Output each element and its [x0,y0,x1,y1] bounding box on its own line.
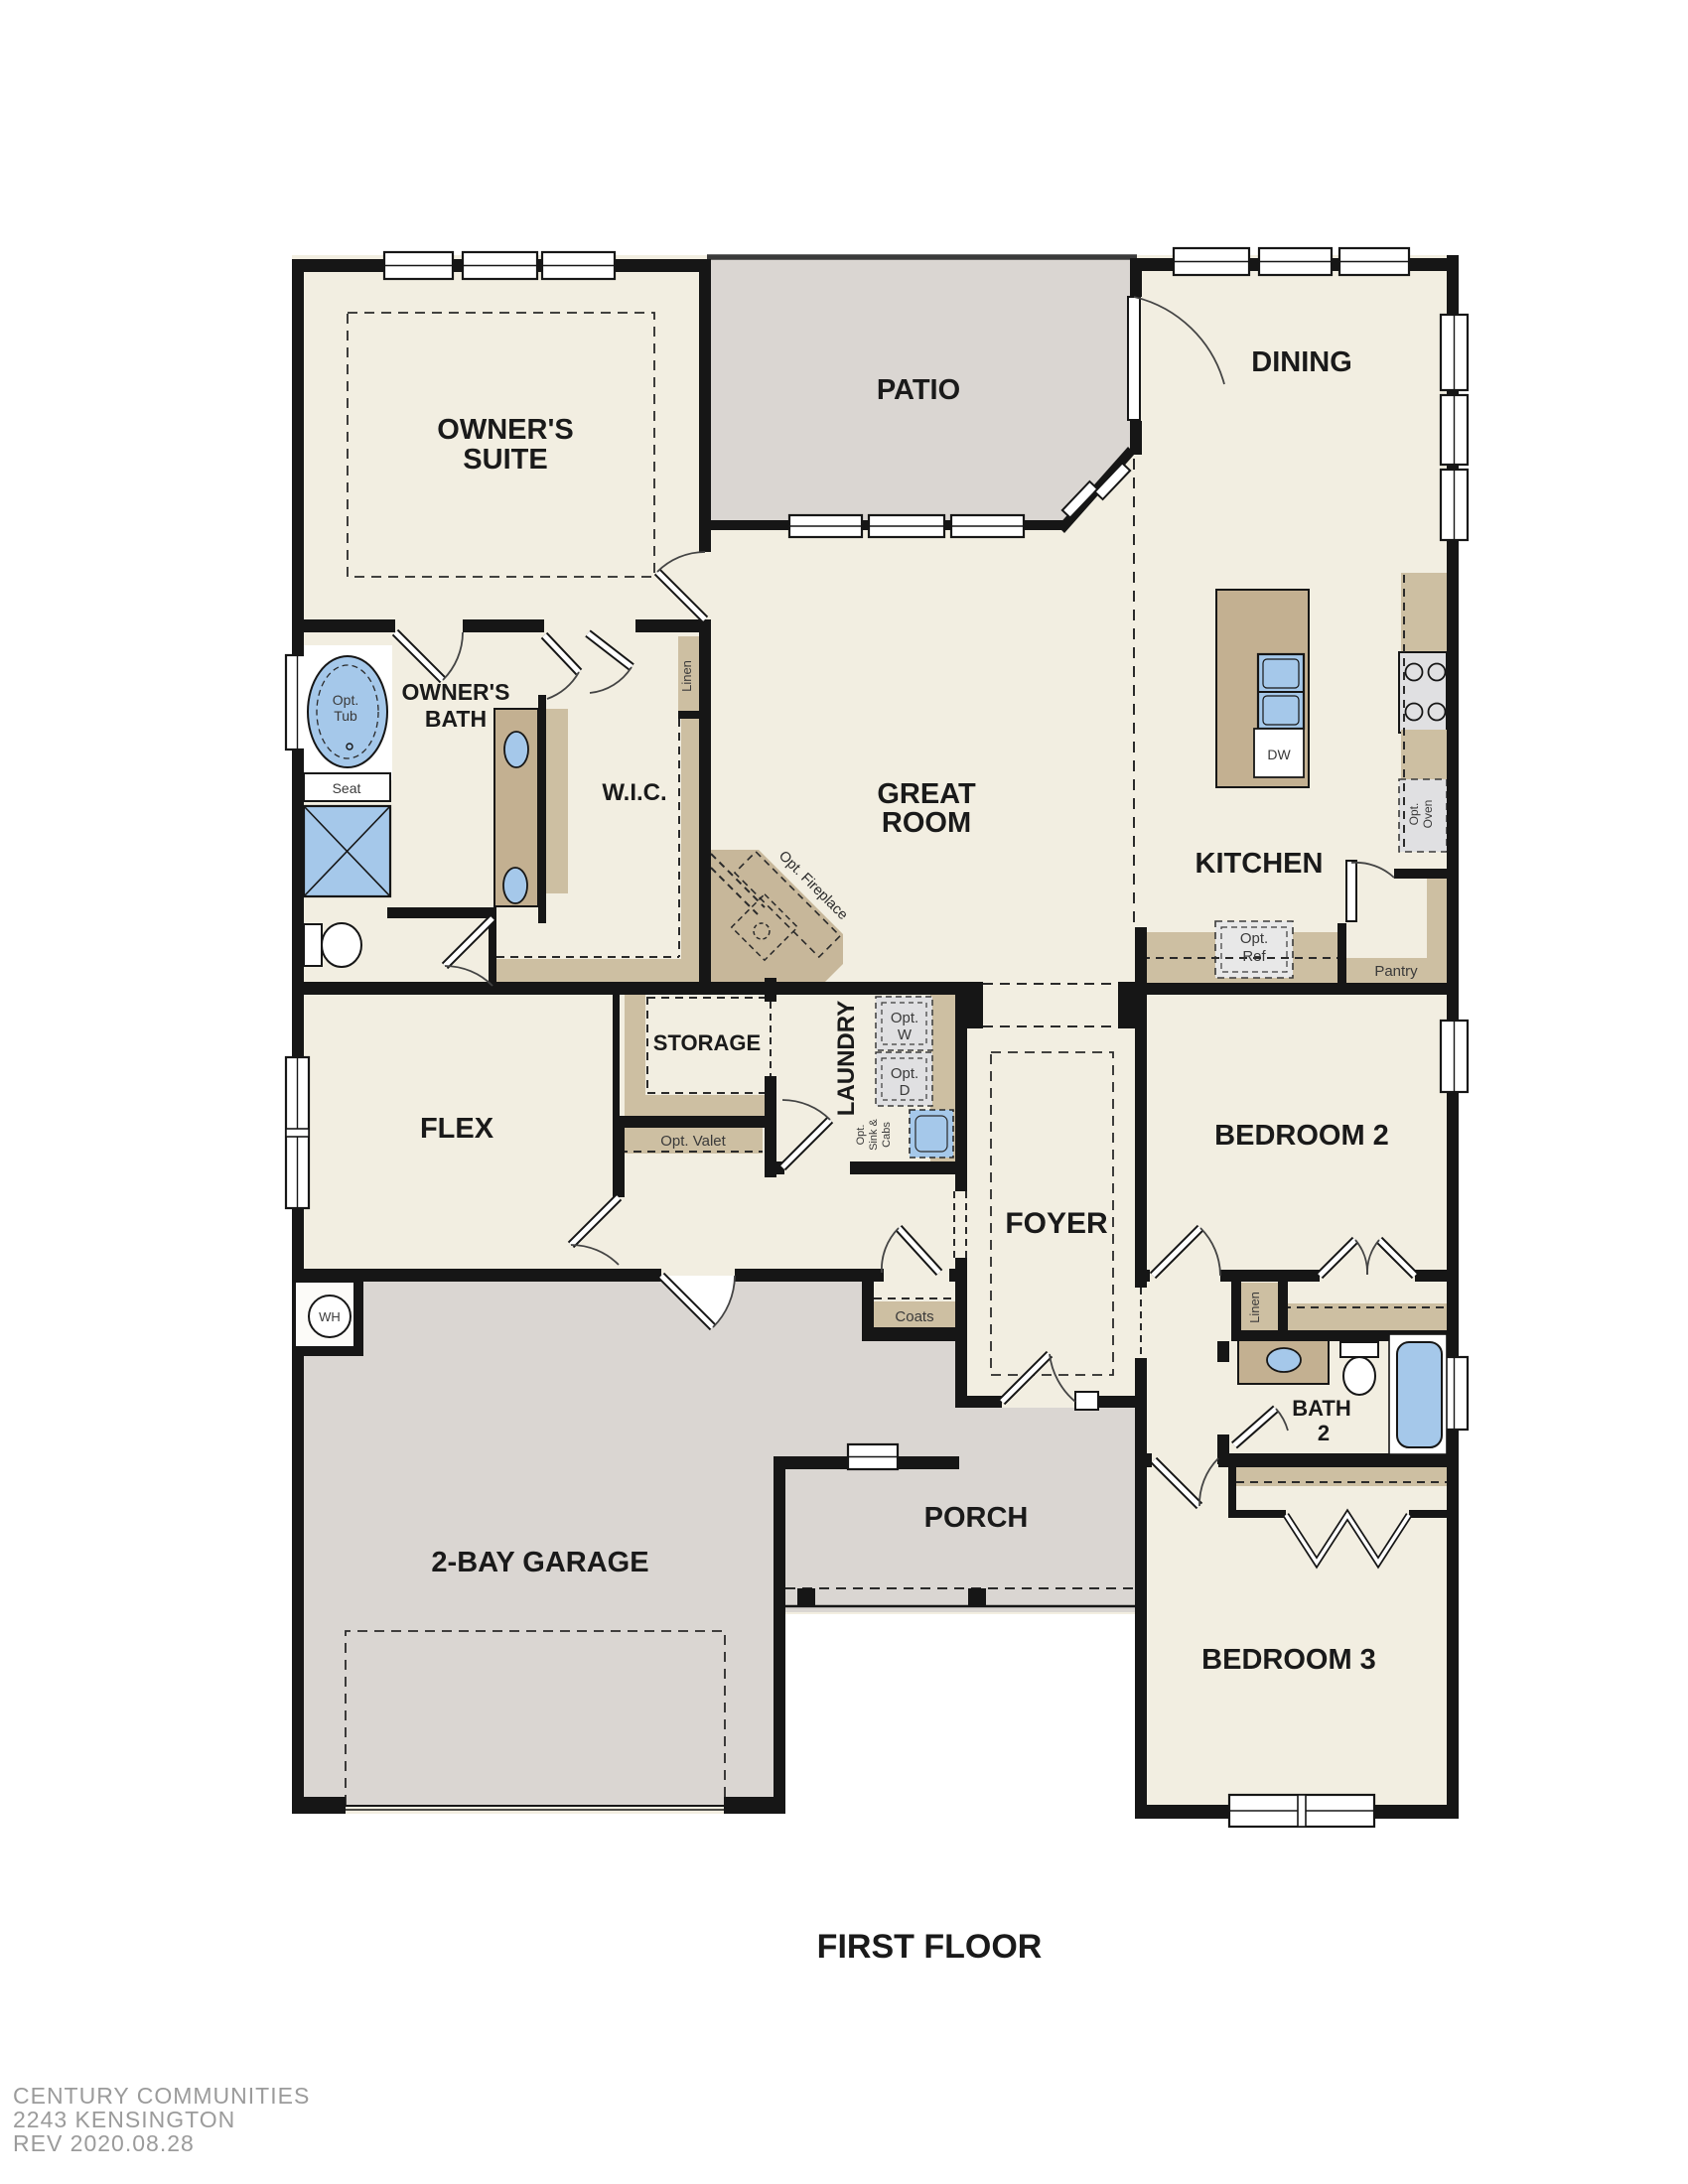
svg-text:Opt.: Opt. [1407,803,1421,826]
svg-text:Ref: Ref [1242,948,1266,965]
svg-text:Opt.: Opt. [333,692,358,708]
svg-text:STORAGE: STORAGE [653,1030,761,1055]
svg-text:OWNER'S: OWNER'S [437,414,573,446]
svg-text:FLEX: FLEX [420,1113,494,1145]
svg-text:WH: WH [319,1309,341,1324]
svg-text:DW: DW [1267,747,1291,762]
svg-text:Tub: Tub [334,708,357,724]
svg-text:2-BAY GARAGE: 2-BAY GARAGE [431,1547,648,1578]
svg-text:BEDROOM 3: BEDROOM 3 [1201,1644,1376,1676]
svg-text:Cabs: Cabs [881,1122,893,1148]
svg-text:D: D [900,1082,911,1099]
svg-text:OWNER'S: OWNER'S [402,679,510,705]
svg-text:REV 2020.08.28: REV 2020.08.28 [13,2130,195,2156]
svg-text:KITCHEN: KITCHEN [1196,848,1324,880]
svg-text:Pantry: Pantry [1374,963,1418,980]
svg-text:2: 2 [1318,1421,1330,1445]
svg-text:Linen: Linen [1247,1292,1262,1323]
svg-text:FOYER: FOYER [1005,1207,1108,1240]
svg-text:Oven: Oven [1421,800,1435,829]
svg-text:BATH: BATH [1292,1396,1350,1421]
svg-text:Opt.: Opt. [891,1010,918,1026]
svg-text:Sink &: Sink & [868,1118,880,1150]
svg-text:Opt.: Opt. [891,1065,918,1082]
svg-text:BATH: BATH [425,706,487,732]
svg-text:SUITE: SUITE [463,444,547,476]
svg-text:Seat: Seat [333,780,361,796]
svg-text:W.I.C.: W.I.C. [602,779,666,806]
svg-text:Opt. Valet: Opt. Valet [660,1133,726,1150]
svg-text:DINING: DINING [1251,346,1352,378]
svg-text:LAUNDRY: LAUNDRY [833,1001,860,1116]
svg-text:W: W [898,1026,913,1043]
svg-text:Coats: Coats [895,1308,933,1325]
svg-text:2243 KENSINGTON: 2243 KENSINGTON [13,2107,235,2132]
svg-text:FIRST FLOOR: FIRST FLOOR [817,1928,1043,1966]
svg-text:Linen: Linen [679,660,694,692]
svg-text:PATIO: PATIO [877,374,960,406]
svg-text:BEDROOM 2: BEDROOM 2 [1214,1120,1389,1152]
svg-text:ROOM: ROOM [882,807,971,839]
svg-text:GREAT: GREAT [877,778,976,810]
svg-text:Opt.: Opt. [1240,930,1268,947]
svg-text:PORCH: PORCH [924,1502,1029,1534]
svg-text:Opt.: Opt. [855,1125,867,1146]
svg-text:CENTURY COMMUNITIES: CENTURY COMMUNITIES [13,2083,310,2109]
